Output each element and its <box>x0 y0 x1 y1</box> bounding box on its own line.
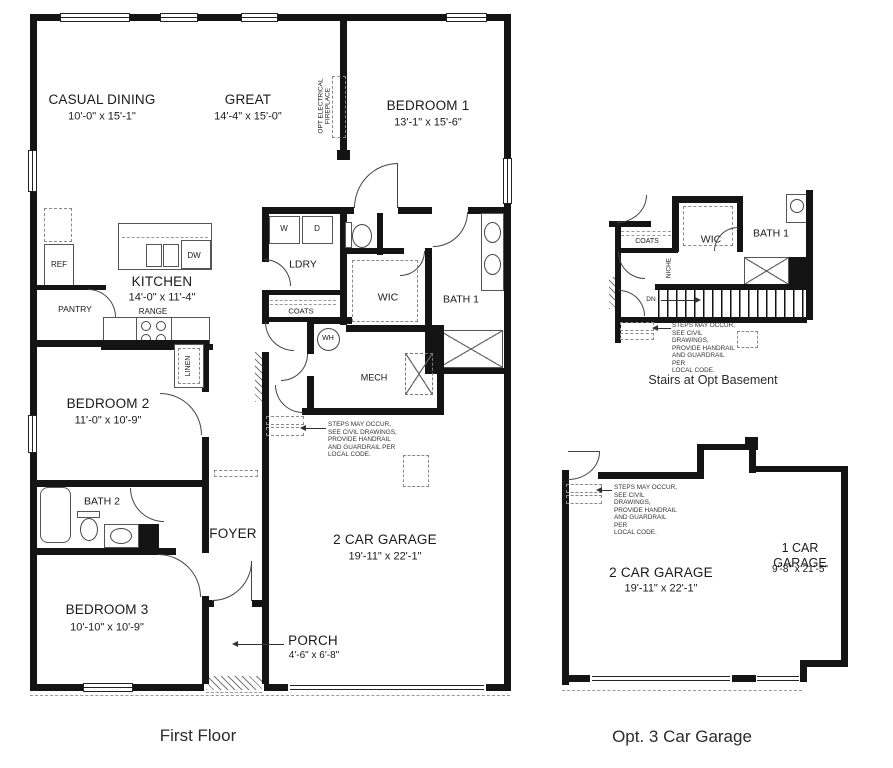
window <box>28 415 37 453</box>
room-label-casual-dining: CASUAL DINING <box>48 92 155 108</box>
window <box>160 13 198 22</box>
stoop <box>620 322 654 331</box>
closet-rod <box>621 231 671 232</box>
island-sink <box>146 244 162 267</box>
mech-label: MECH <box>361 373 388 384</box>
porch-arrowhead <box>232 641 238 647</box>
mech-unit <box>405 353 433 395</box>
note-arrowhead <box>652 325 658 331</box>
porch-dims: 4'-6" x 6'-8" <box>289 650 339 662</box>
window <box>83 683 133 692</box>
bath1-label: BATH 1 <box>753 228 789 241</box>
room-label-bedroom2: BEDROOM 2 <box>67 396 150 412</box>
wall <box>202 596 209 684</box>
bath1-sink <box>484 254 501 275</box>
wall <box>202 600 214 607</box>
stairs-detail-caption: Stairs at Opt Basement <box>648 373 777 387</box>
ldry-label: LDRY <box>289 259 317 272</box>
wall <box>609 221 651 227</box>
shower <box>744 257 789 285</box>
dw-label: DW <box>187 251 200 261</box>
closet-rod <box>621 235 671 236</box>
wall <box>139 524 159 549</box>
dn-label: DN <box>646 296 655 304</box>
stoop <box>566 495 602 504</box>
wall <box>30 480 209 487</box>
toilet-tank <box>345 222 352 248</box>
dn-arrowhead <box>695 297 701 303</box>
linen-label: LINEN <box>185 356 193 377</box>
dn-arrow <box>661 300 695 301</box>
bath2-label: BATH 2 <box>84 496 120 509</box>
washer-label: W <box>280 224 288 234</box>
opt-fireplace-outline <box>332 76 346 138</box>
wall <box>437 325 444 415</box>
wall <box>262 207 269 262</box>
door-arc <box>130 488 164 522</box>
niche-label: NICHE <box>665 258 672 278</box>
door-leaf <box>397 163 398 208</box>
garage-door <box>290 685 484 690</box>
stair-treads <box>658 290 807 317</box>
room-label-kitchen: KITCHEN <box>132 274 193 290</box>
wall <box>806 190 813 320</box>
steps-note: STEPS MAY OCCUR, SEE CIVIL DRAWINGS, PRO… <box>672 322 736 375</box>
wall <box>672 196 679 252</box>
note-leader <box>306 428 326 429</box>
door-arc <box>160 393 202 435</box>
wall <box>302 408 444 415</box>
burner <box>141 321 151 331</box>
room-dims-casual-dining: 10'-0" x 15'-1" <box>68 110 136 123</box>
stoop <box>737 331 758 348</box>
foyer-label: FOYER <box>209 526 257 542</box>
bathtub <box>40 487 71 543</box>
porch-leader <box>238 644 284 645</box>
window <box>503 158 512 204</box>
room-label-bedroom3: BEDROOM 3 <box>66 602 149 618</box>
wall <box>598 472 700 479</box>
door-arc <box>275 385 303 413</box>
room-label-garage: 2 CAR GARAGE <box>333 532 437 548</box>
stoop <box>620 333 654 340</box>
toilet-bowl <box>80 518 98 541</box>
bath1-shower <box>439 330 503 368</box>
toilet-tank <box>77 511 100 518</box>
wall <box>789 257 806 285</box>
window <box>446 13 487 22</box>
closet-rod <box>270 304 336 305</box>
door-leaf <box>568 451 600 452</box>
wall <box>398 207 432 214</box>
wall <box>252 600 264 607</box>
closet-rod <box>270 300 336 301</box>
overhang-dashed <box>30 695 510 696</box>
wall <box>30 14 37 691</box>
window <box>60 13 130 22</box>
overhang-dashed <box>562 690 802 691</box>
steps-note: STEPS MAY OCCUR, SEE CIVIL DRAWINGS, PRO… <box>328 421 398 459</box>
upper-cabinet <box>44 208 72 242</box>
ref-label: REF <box>51 260 67 270</box>
jamb-hatch <box>609 277 615 309</box>
window <box>241 13 278 22</box>
note-arrowhead <box>300 425 306 431</box>
burner <box>156 321 166 331</box>
door-arc <box>264 259 291 286</box>
wh-label: WH <box>322 335 334 343</box>
coats-label: COATS <box>635 238 659 246</box>
door-arc <box>281 354 308 381</box>
jamb-hatch <box>255 352 262 402</box>
door-arc <box>617 195 647 223</box>
room-label-great: GREAT <box>225 92 272 108</box>
wic-label: WIC <box>378 292 398 305</box>
window <box>28 150 37 192</box>
room-dims-2car: 19'-11" x 22'-1" <box>625 582 698 595</box>
pantry-label: PANTRY <box>58 304 92 314</box>
porch-threshold-hatch <box>206 676 262 690</box>
opt-fireplace-label: OPT ELECTRICAL FIREPLACE <box>318 61 333 151</box>
door-arc <box>618 252 645 279</box>
note-leader <box>657 328 671 329</box>
wall <box>30 548 176 555</box>
wall <box>672 196 743 203</box>
dryer-label: D <box>314 224 320 234</box>
door-arc <box>619 290 645 316</box>
entry-stoop <box>266 416 304 425</box>
room-dims-great: 14'-4" x 15'-0" <box>214 110 282 123</box>
wall <box>346 248 404 254</box>
island-sink <box>163 244 179 267</box>
door-arc <box>433 212 468 247</box>
room-dims-bedroom1: 13'-1" x 15'-6" <box>394 116 462 129</box>
wall <box>307 317 314 354</box>
door-arc <box>88 289 116 317</box>
room-dims-1car: 9'-8" x 21'-5" <box>772 564 828 576</box>
garage-stoop <box>403 455 429 487</box>
wall <box>749 466 848 472</box>
porch-label: PORCH <box>288 633 338 649</box>
wall <box>346 325 442 332</box>
coats-label: COATS <box>288 307 313 316</box>
steps-note: STEPS MAY OCCUR, SEE CIVIL DRAWINGS, PRO… <box>614 484 678 537</box>
room-dims-bedroom2: 11'-0" x 10'-9" <box>75 414 142 427</box>
bath1-sink <box>484 222 501 243</box>
wall <box>504 14 511 691</box>
room-label-2car: 2 CAR GARAGE <box>609 565 713 581</box>
range-label: RANGE <box>139 307 167 317</box>
wall <box>337 150 350 160</box>
door-arc <box>354 163 398 208</box>
door-arc <box>212 561 252 601</box>
bath2-sink <box>110 528 132 544</box>
door-leaf <box>251 561 252 601</box>
note-leader <box>601 490 612 491</box>
first-floor-caption: First Floor <box>160 726 237 746</box>
sink-bowl <box>790 199 804 213</box>
room-label-bedroom1: BEDROOM 1 <box>387 98 470 114</box>
garage-door <box>757 676 799 681</box>
wall <box>262 352 269 684</box>
door-arc <box>265 322 294 351</box>
island-overhang <box>122 237 208 238</box>
room-dims-garage: 19'-11" x 22'-1" <box>349 550 422 563</box>
wall <box>262 290 342 295</box>
wall <box>202 437 209 553</box>
door-arc <box>568 452 600 480</box>
garage-detail-caption: Opt. 3 Car Garage <box>612 727 752 747</box>
toilet-bowl <box>352 224 372 248</box>
garage-door <box>592 676 730 681</box>
porch-edge-dashed <box>206 692 262 693</box>
entry-stoop <box>266 427 304 436</box>
wall <box>800 660 848 667</box>
door-arc <box>158 554 201 597</box>
cased-opening <box>214 470 258 477</box>
room-dims-bedroom3: 10'-10" x 10'-9" <box>70 621 144 634</box>
bath1-label: BATH 1 <box>443 294 479 307</box>
wall <box>425 248 432 332</box>
room-dims-kitchen: 14'-0" x 11'-4" <box>129 291 196 304</box>
floor-plan-page: OPT ELECTRICAL FIREPLACE W D LDRY COATS <box>0 0 893 768</box>
note-arrowhead <box>596 487 602 493</box>
